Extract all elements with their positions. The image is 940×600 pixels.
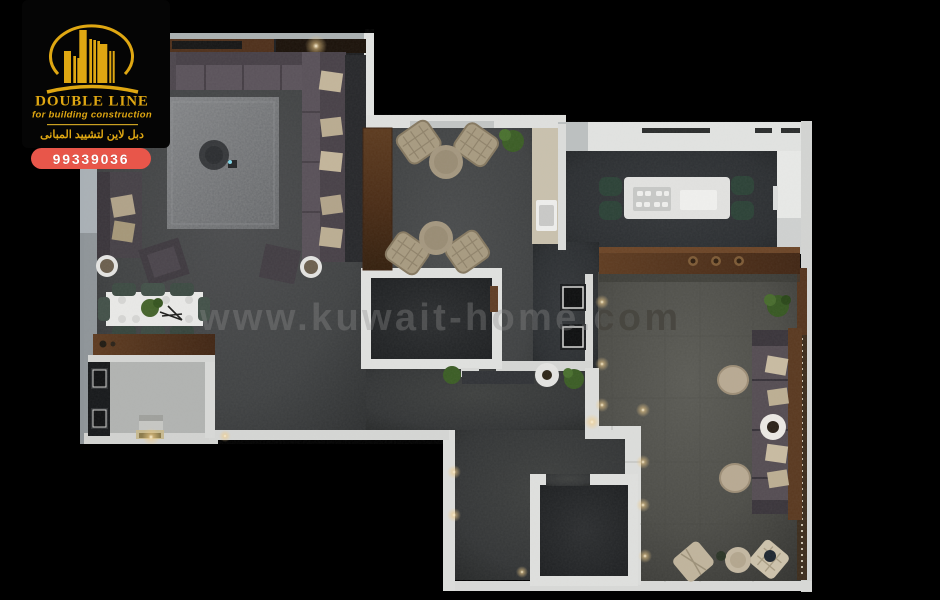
svg-text:for building construction: for building construction [32, 110, 152, 121]
svg-text:DOUBLE LINE: DOUBLE LINE [35, 94, 149, 110]
svg-text:99339036: 99339036 [53, 151, 130, 167]
svg-text:دبل لاين لتشييد المبانى: دبل لاين لتشييد المبانى [40, 129, 144, 141]
